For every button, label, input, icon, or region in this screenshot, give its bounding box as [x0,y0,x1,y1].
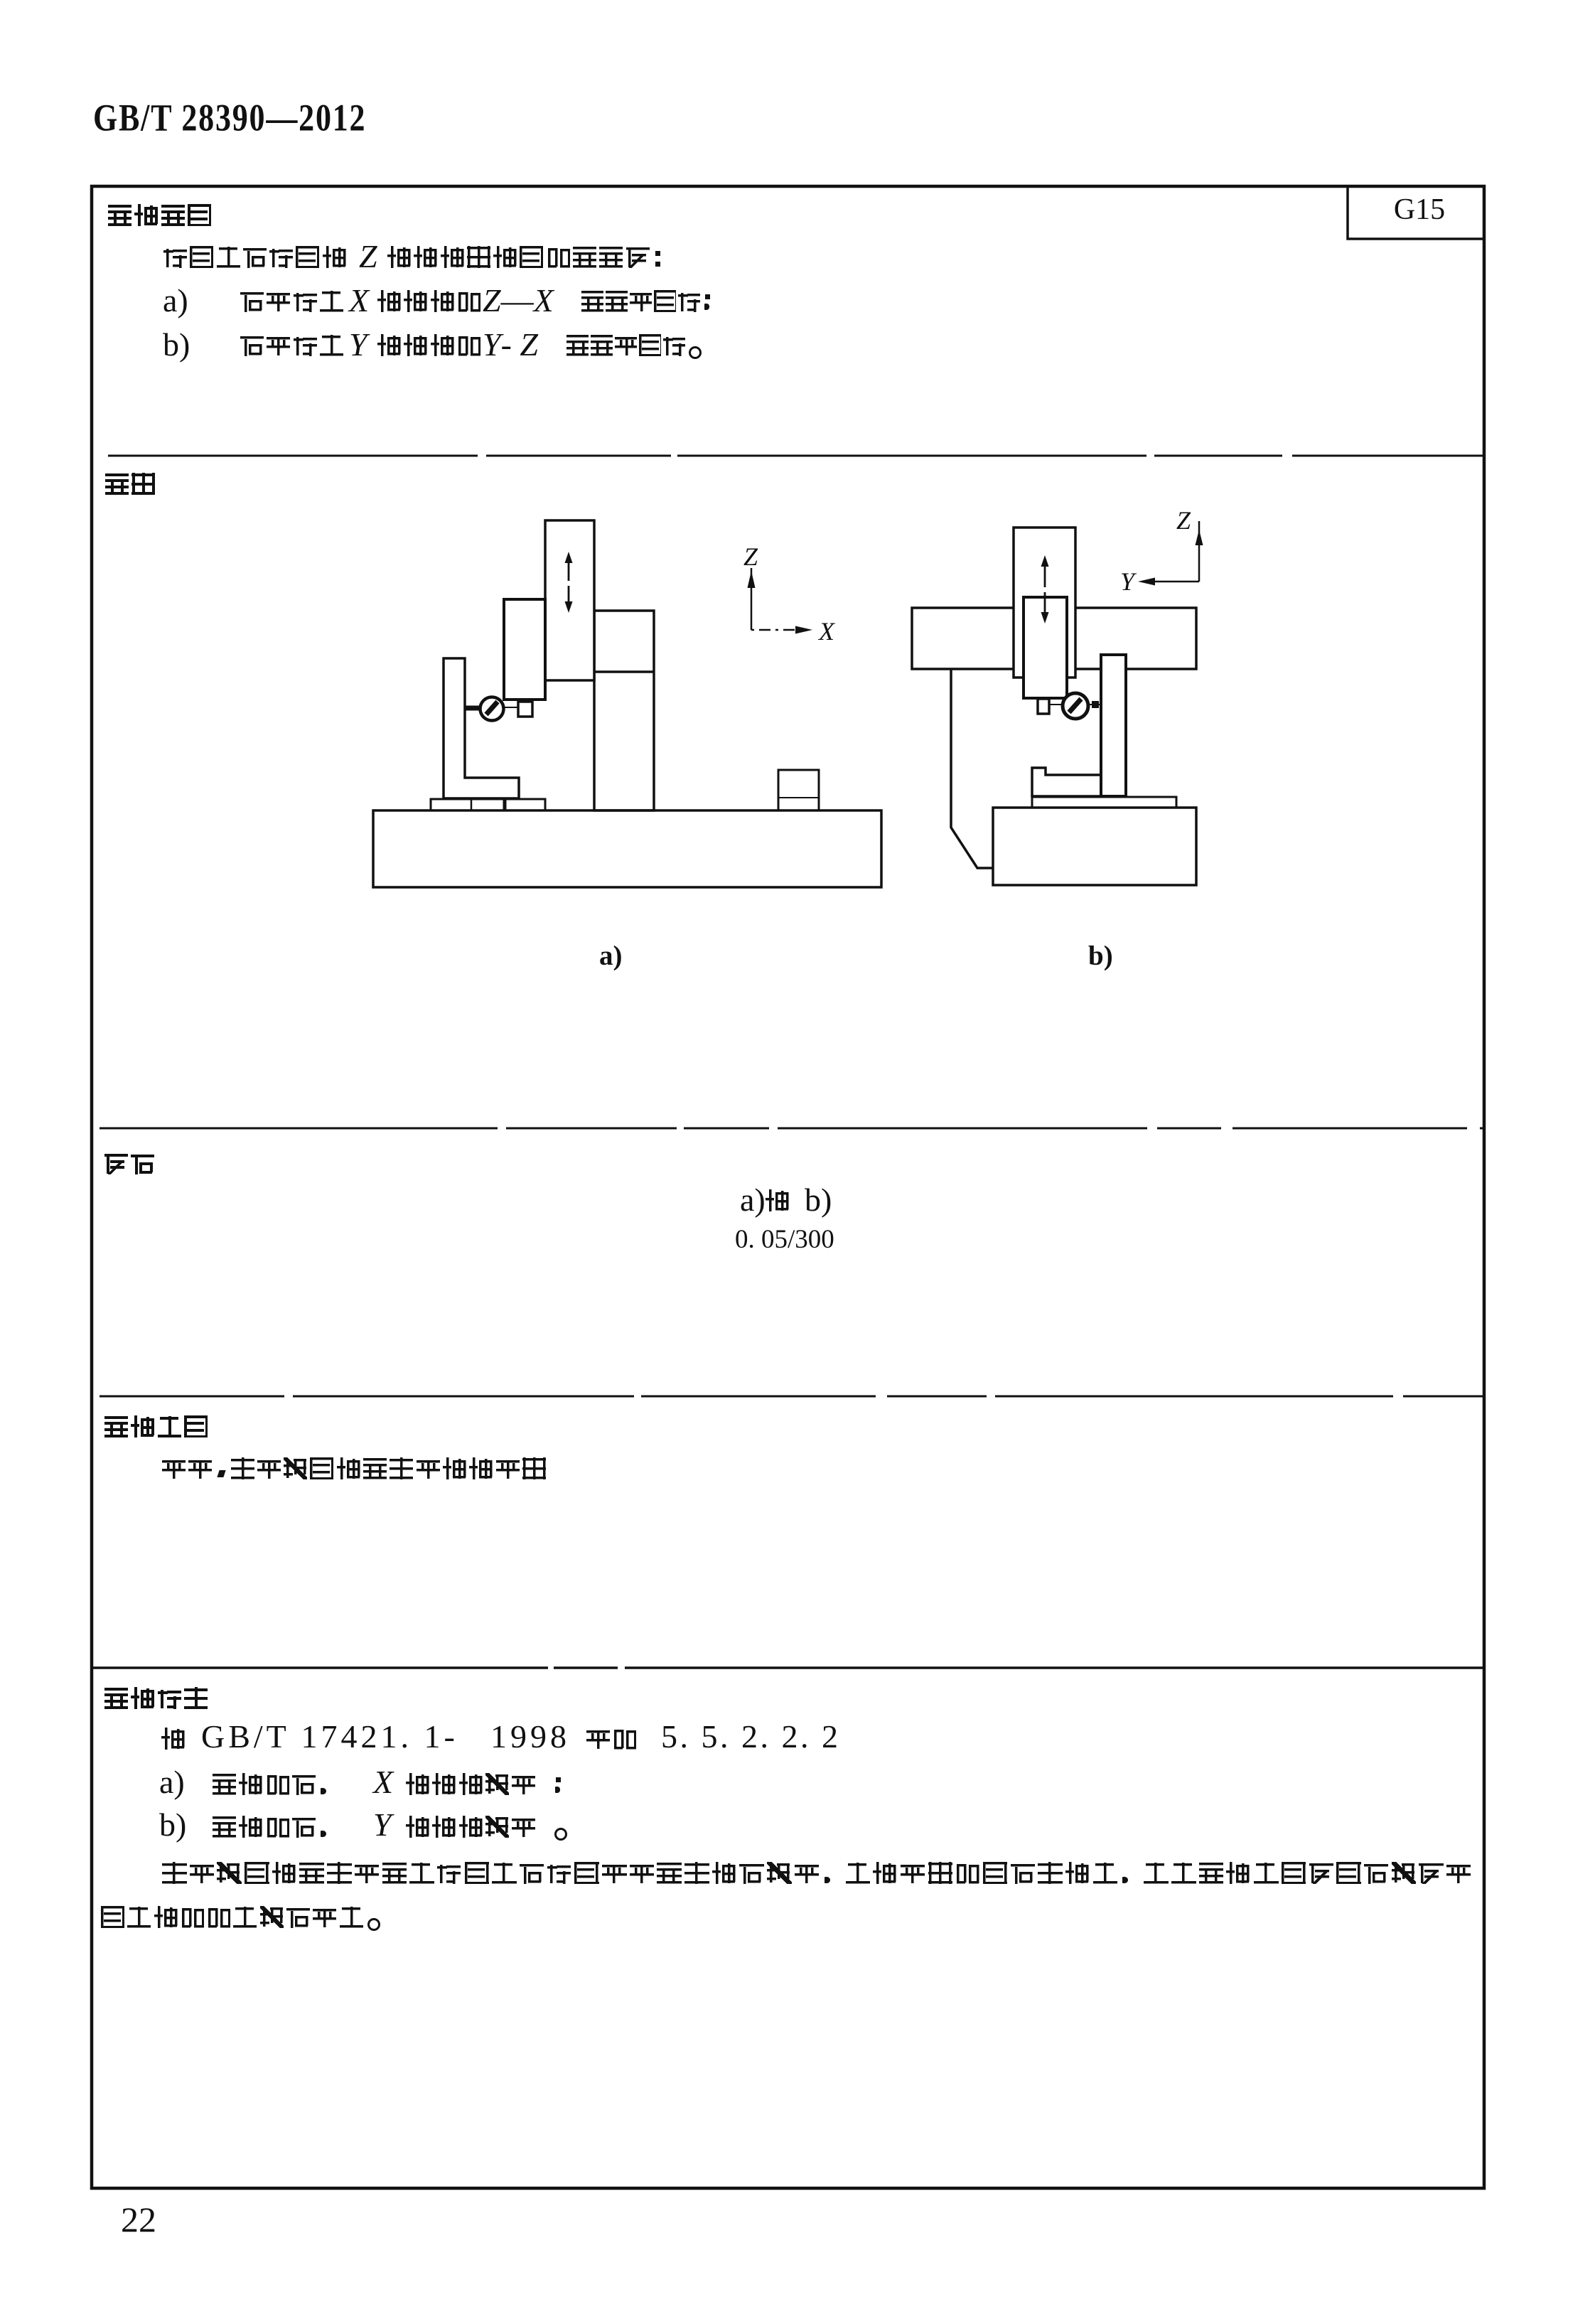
svg-text:Z: Z [743,542,758,571]
svg-text:Z: Z [1176,506,1191,535]
svg-text:Y: Y [1120,567,1137,596]
svg-text:a): a) [599,941,623,971]
svg-text:b): b) [1088,941,1113,971]
svg-text:X: X [817,617,836,646]
